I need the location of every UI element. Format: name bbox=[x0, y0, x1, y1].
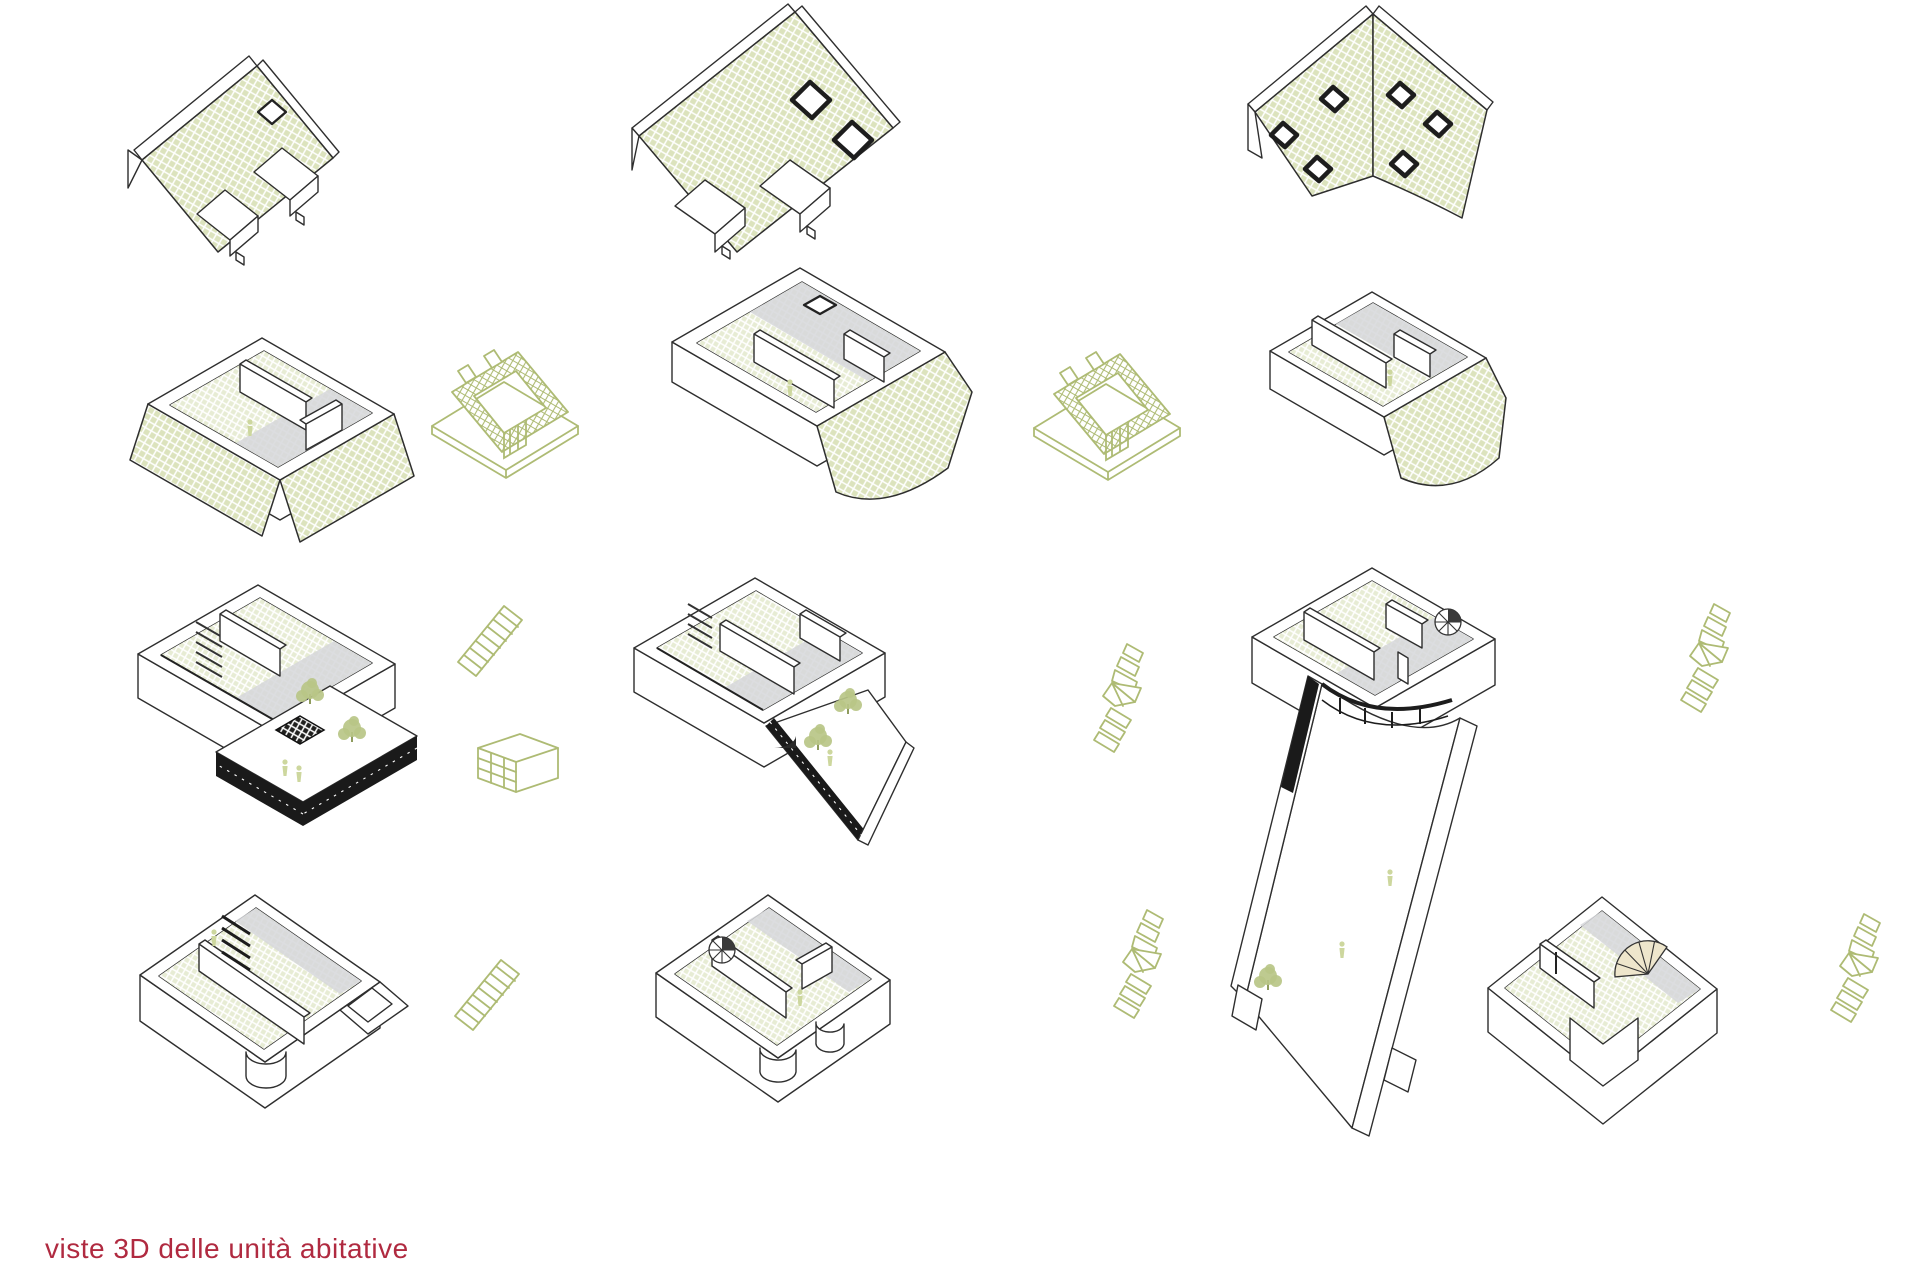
shelf-detail bbox=[478, 734, 558, 792]
winder-stair-detail-d bbox=[1831, 914, 1880, 1022]
unit-b-living-drawing bbox=[634, 578, 914, 845]
unit-a-attic-drawing bbox=[130, 338, 414, 542]
courtyard bbox=[1231, 676, 1477, 1136]
winder-stair-detail-c bbox=[1114, 910, 1163, 1018]
straight-stair-detail-a bbox=[458, 606, 522, 676]
unit-c-attic-drawing bbox=[1270, 292, 1506, 486]
unit-b-ground-drawing bbox=[656, 895, 890, 1102]
straight-stair-detail-b bbox=[455, 960, 519, 1030]
sheet-caption: viste 3D delle unità abitative bbox=[45, 1233, 409, 1265]
dormer-detail-b bbox=[1034, 352, 1180, 480]
unit-a-living-drawing bbox=[138, 585, 417, 826]
unit-c-living-drawing bbox=[1231, 568, 1495, 1136]
unit-right-ground-drawing bbox=[1488, 897, 1717, 1124]
winder-stair-detail-b bbox=[1681, 604, 1730, 712]
unit-c-roof-drawing bbox=[1248, 6, 1493, 218]
axonometric-drawing bbox=[0, 0, 1920, 1280]
dormer-detail-a bbox=[432, 350, 578, 478]
column bbox=[1398, 652, 1408, 684]
drawing-sheet: viste 3D delle unità abitative bbox=[0, 0, 1920, 1280]
winder-stair-detail-a bbox=[1094, 644, 1143, 752]
unit-a-roof-drawing bbox=[128, 56, 339, 265]
unit-b-roof-drawing bbox=[632, 4, 900, 259]
unit-b-attic-drawing bbox=[672, 268, 972, 499]
unit-a-ground-drawing bbox=[140, 895, 408, 1108]
